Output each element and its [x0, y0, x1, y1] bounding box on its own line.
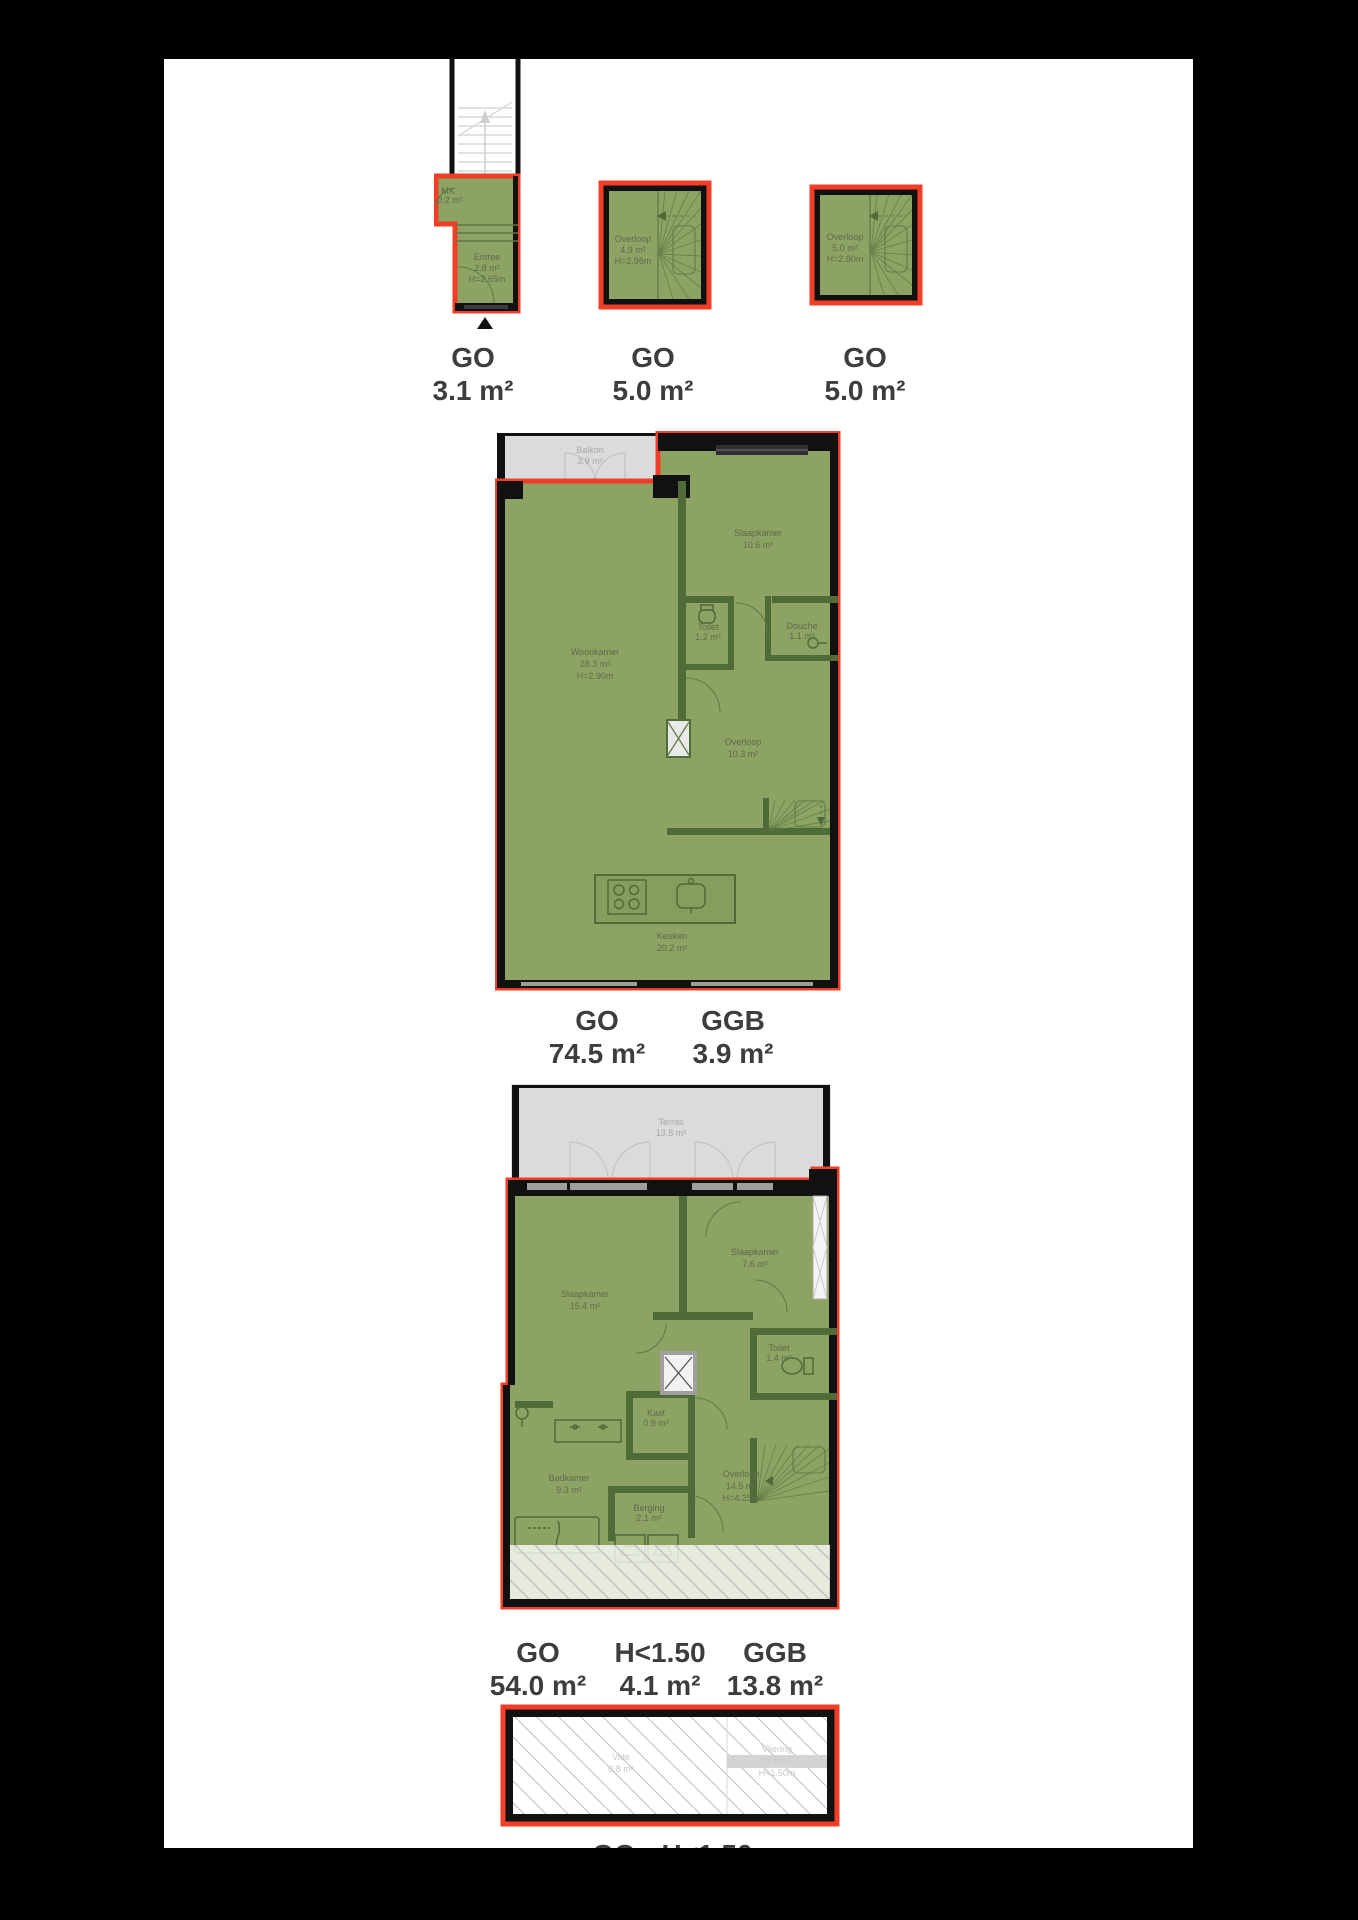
svg-text:10.6 m²: 10.6 m²: [743, 540, 774, 550]
svg-text:1.4 m²: 1.4 m²: [766, 1353, 792, 1363]
interior-wall: [653, 1312, 753, 1320]
svg-text:Badkamer: Badkamer: [548, 1473, 589, 1483]
svg-text:0.4 m²: 0.4 m²: [764, 1756, 790, 1766]
area-label-go-verdieping-1: GO5.0 m²: [613, 341, 694, 407]
svg-text:1.2 m²: 1.2 m²: [695, 632, 721, 642]
room-label-kast: Kast 0.9 m²: [643, 1408, 669, 1428]
svg-text:28.3 m²: 28.3 m²: [580, 659, 611, 669]
berging-wall: [608, 1486, 688, 1493]
svg-text:Terras: Terras: [658, 1117, 684, 1127]
window-band: [521, 982, 637, 986]
svg-text:20.2 m²: 20.2 m²: [657, 943, 688, 953]
top-black-bar: [0, 0, 1358, 59]
svg-text:Vliering: Vliering: [762, 1744, 792, 1754]
area-label-go-slaapverdieping: GO54.0 m²: [490, 1636, 587, 1702]
douche-wall: [765, 596, 771, 660]
svg-text:H=2.80m: H=2.80m: [827, 254, 864, 264]
svg-text:H<1.50m: H<1.50m: [759, 1768, 796, 1778]
svg-text:Keuken: Keuken: [657, 931, 688, 941]
right-wall: [830, 433, 838, 988]
area-label-go-begane-grond: GO3.1 m²: [433, 341, 514, 407]
svg-text:5.0 m²: 5.0 m²: [832, 243, 858, 253]
floor-plan-verdieping-2: Overloop 5.0 m² H=2.80m: [806, 180, 926, 310]
floor-plan-begane-grond: MK 0.2 m² Entree 2.8 m² H=2.65m: [434, 44, 524, 334]
svg-text:H=4.25m: H=4.25m: [723, 1493, 760, 1503]
svg-text:2.8 m²: 2.8 m²: [474, 263, 500, 273]
bottom-black-bar: [0, 1848, 1358, 1920]
svg-text:Overloop: Overloop: [615, 234, 652, 244]
interior-wall: [772, 596, 838, 603]
interior-wall: [686, 596, 734, 603]
svg-text:0.2 m²: 0.2 m²: [437, 195, 463, 205]
bottom-wall: [503, 1599, 837, 1607]
entrance-arrow-icon: [477, 317, 493, 329]
low-height-zone: [510, 1545, 830, 1599]
svg-text:Entree: Entree: [474, 252, 501, 262]
left-wall: [508, 1180, 515, 1385]
svg-text:H=2.96m: H=2.96m: [615, 256, 652, 266]
svg-text:H=2.65m: H=2.65m: [469, 274, 506, 284]
elevator-shaft: [662, 1353, 695, 1393]
svg-text:Overloop: Overloop: [723, 1469, 760, 1479]
balkon-left-wall: [497, 434, 505, 483]
area-label-ggb-woonverdieping: GGB3.9 m²: [693, 1004, 774, 1070]
svg-text:0.9 m²: 0.9 m²: [643, 1418, 669, 1428]
stair-wall: [667, 828, 830, 835]
left-wall: [503, 1385, 510, 1607]
svg-text:14.5 m²: 14.5 m²: [726, 1481, 757, 1491]
svg-text:13.8 m²: 13.8 m²: [656, 1128, 687, 1138]
kast-wall: [626, 1453, 688, 1460]
area-label-go-verdieping-2: GO5.0 m²: [825, 341, 906, 407]
entrance-door: [464, 305, 508, 309]
svg-text:Slaapkamer: Slaapkamer: [734, 528, 782, 538]
toilet-wall: [728, 596, 734, 670]
svg-text:Douche: Douche: [786, 621, 817, 631]
floor-plan-slaapverdieping: Terras 13.8 m²: [493, 1083, 841, 1615]
room-label-overloop: Overloop 14.5 m² H=4.25m: [723, 1469, 760, 1503]
svg-text:3.9 m²: 3.9 m²: [577, 456, 603, 466]
svg-text:Overloop: Overloop: [827, 232, 864, 242]
svg-text:Slaapkamer: Slaapkamer: [561, 1289, 609, 1299]
floor-plan-verdieping-1: Overloop 4.9 m² H=2.96m: [595, 176, 715, 314]
svg-text:H=2.90m: H=2.90m: [577, 671, 614, 681]
berging-wall: [608, 1486, 615, 1541]
floor-plan-woonverdieping: Balkon 3.9 m²: [495, 431, 841, 991]
svg-text:Balkon: Balkon: [576, 445, 604, 455]
svg-text:2.1 m²: 2.1 m²: [636, 1513, 662, 1523]
window-band: [691, 982, 813, 986]
toilet-wall: [750, 1328, 757, 1400]
balkon-top-edge: [497, 433, 681, 436]
left-black-bar: [0, 0, 164, 1920]
svg-text:Slaapkamer: Slaapkamer: [731, 1247, 779, 1257]
window: [813, 1196, 827, 1299]
area-label-h150-slaapverdieping: H<1.504.1 m²: [614, 1636, 705, 1702]
svg-text:Berging: Berging: [633, 1503, 664, 1513]
interior-wall: [688, 1393, 695, 1538]
corner-block: [497, 481, 523, 499]
svg-text:4.9 m²: 4.9 m²: [620, 245, 646, 255]
room-label-toilet: Toilet 1.2 m²: [695, 622, 721, 642]
floorplan-sheet: MK 0.2 m² Entree 2.8 m² H=2.65m Overloop…: [0, 0, 1358, 1920]
right-black-bar: [1193, 0, 1358, 1920]
svg-text:Toilet: Toilet: [697, 622, 719, 632]
svg-text:0.8 m²: 0.8 m²: [608, 1764, 634, 1774]
svg-text:Overloop: Overloop: [725, 737, 762, 747]
toilet-wall: [686, 664, 734, 670]
kitchen-island: [595, 875, 735, 923]
right-wall: [513, 176, 518, 311]
room-label-balkon: Balkon 3.9 m²: [576, 445, 604, 466]
svg-text:Kast: Kast: [647, 1408, 666, 1418]
room-label-terras: Terras 13.8 m²: [656, 1117, 687, 1138]
toilet-wall: [750, 1328, 837, 1335]
floor-plan-vliering: Vide 0.8 m² Vliering 0.4 m² H<1.50m: [496, 1698, 844, 1832]
svg-text:Woonkamer: Woonkamer: [571, 647, 619, 657]
room-label-douche: Douche 1.1 m²: [786, 621, 817, 641]
area-label-go-woonverdieping: GO74.5 m²: [549, 1004, 646, 1070]
toilet-wall: [750, 1393, 837, 1400]
area-label-ggb-slaapverdieping: GGB13.8 m²: [727, 1636, 824, 1702]
douche-wall: [765, 655, 838, 661]
interior-wall: [678, 481, 686, 721]
svg-text:10.3 m²: 10.3 m²: [728, 749, 759, 759]
room-label-toilet: Toilet 1.4 m²: [766, 1343, 792, 1363]
svg-text:Toilet: Toilet: [768, 1343, 790, 1353]
svg-text:1.1 m²: 1.1 m²: [789, 631, 815, 641]
svg-text:Vide: Vide: [612, 1752, 630, 1762]
svg-text:15.4 m²: 15.4 m²: [570, 1301, 601, 1311]
right-wall: [829, 1169, 837, 1607]
svg-text:7.6 m²: 7.6 m²: [742, 1259, 768, 1269]
left-wall: [497, 481, 505, 988]
room-label-berging: Berging 2.1 m²: [633, 1503, 664, 1523]
svg-text:9.3 m²: 9.3 m²: [556, 1485, 582, 1495]
kast-wall: [626, 1391, 633, 1460]
interior-wall: [679, 1196, 687, 1312]
